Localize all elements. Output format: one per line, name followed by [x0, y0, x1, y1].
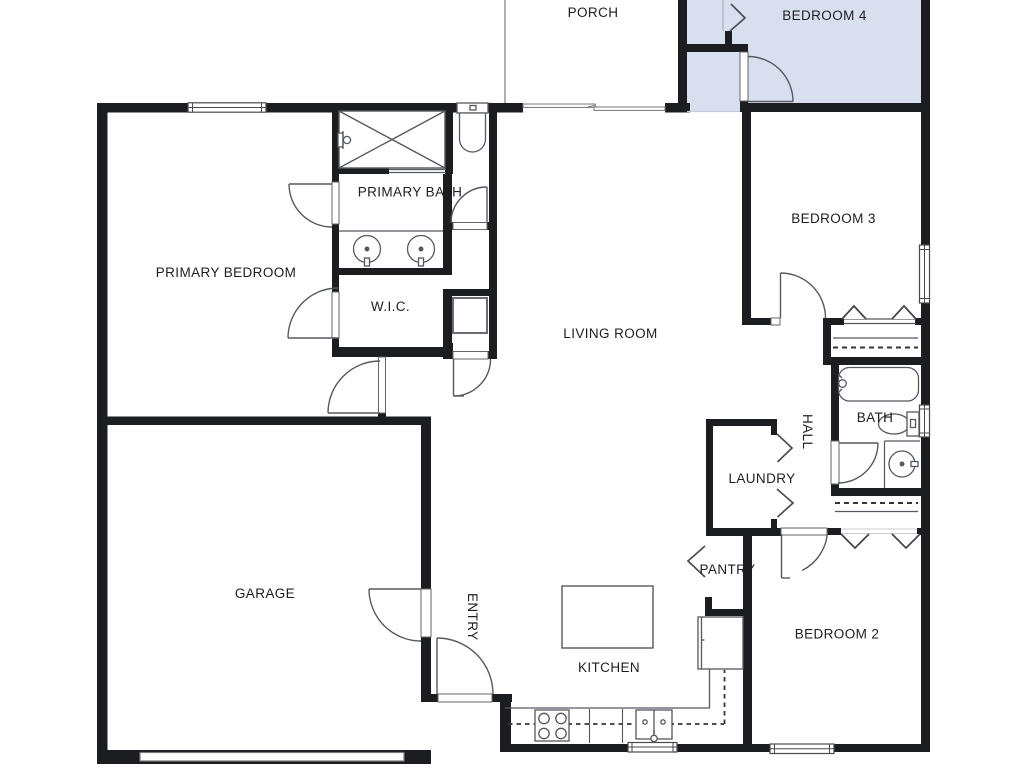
svg-text:BEDROOM 3: BEDROOM 3 [791, 211, 876, 226]
svg-text:W.I.C.: W.I.C. [371, 299, 410, 314]
svg-text:HALL: HALL [800, 414, 815, 449]
svg-text:ENTRY: ENTRY [465, 593, 480, 641]
svg-text:BEDROOM 4: BEDROOM 4 [782, 8, 867, 23]
svg-text:LAUNDRY: LAUNDRY [728, 471, 795, 486]
svg-text:LIVING ROOM: LIVING ROOM [563, 326, 657, 341]
svg-text:PRIMARY BATH: PRIMARY BATH [358, 185, 463, 200]
svg-text:PORCH: PORCH [568, 5, 619, 20]
svg-text:GARAGE: GARAGE [235, 586, 295, 601]
svg-text:BEDROOM 2: BEDROOM 2 [795, 627, 880, 642]
svg-text:KITCHEN: KITCHEN [578, 660, 640, 675]
svg-text:BATH: BATH [857, 410, 894, 425]
svg-text:PRIMARY BEDROOM: PRIMARY BEDROOM [156, 265, 297, 280]
svg-text:PANTRY: PANTRY [700, 562, 756, 577]
